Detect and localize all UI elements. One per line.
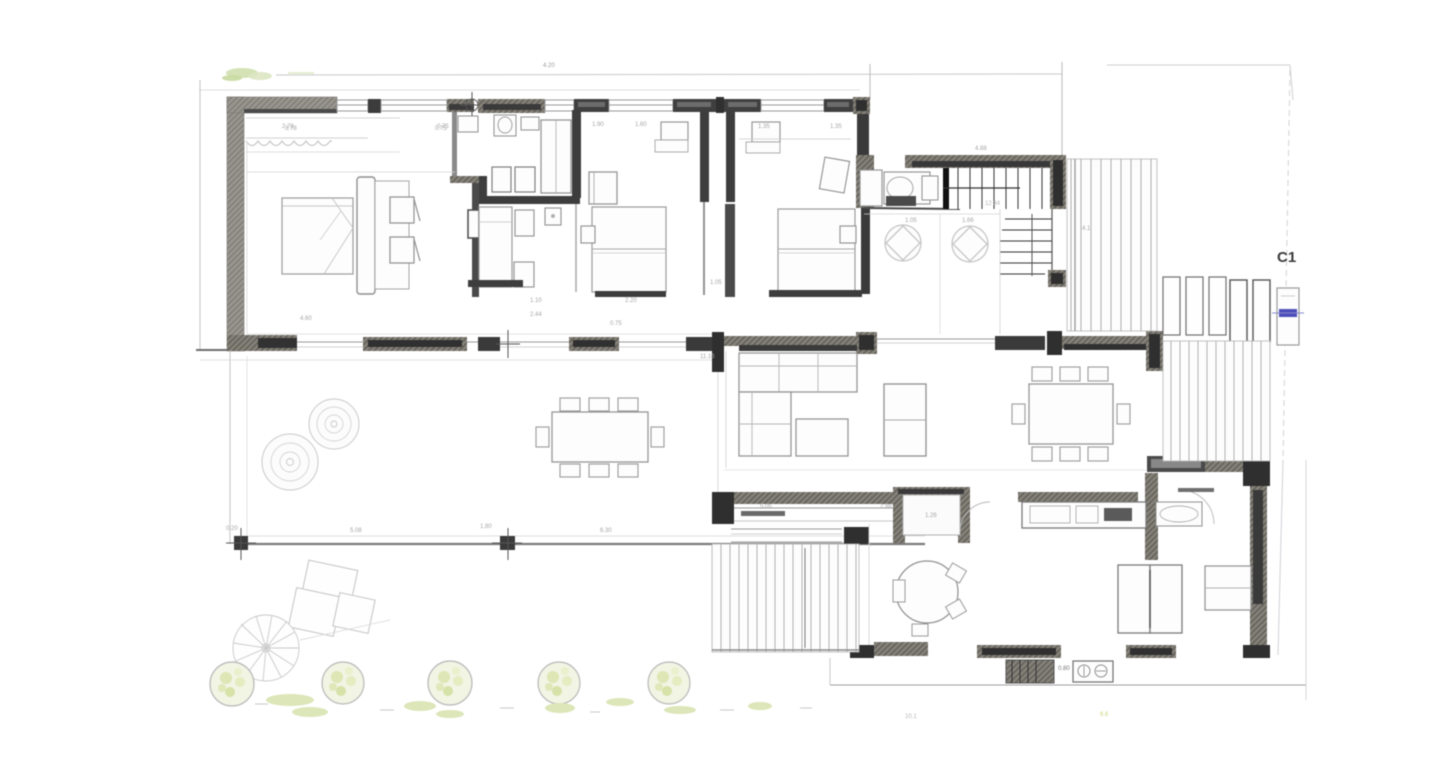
svg-text:5.08: 5.08	[350, 528, 362, 534]
svg-text:6.30: 6.30	[600, 528, 612, 534]
svg-text:6.6: 6.6	[1100, 712, 1109, 718]
svg-text:0.75: 0.75	[437, 124, 449, 130]
svg-text:1.10: 1.10	[530, 298, 542, 304]
svg-text:10.1: 10.1	[905, 714, 917, 720]
svg-text:1.90: 1.90	[592, 122, 604, 128]
svg-text:0.80: 0.80	[1058, 666, 1070, 672]
svg-text:1.80: 1.80	[480, 524, 492, 530]
svg-text:1.35: 1.35	[758, 124, 770, 130]
svg-text:4.20: 4.20	[543, 63, 555, 69]
svg-text:1.66: 1.66	[962, 218, 974, 224]
svg-text:0.75: 0.75	[610, 321, 622, 327]
svg-text:2.20: 2.20	[625, 298, 637, 304]
svg-text:12 34: 12 34	[985, 201, 1001, 207]
svg-text:4.1: 4.1	[1082, 226, 1091, 232]
svg-text:1.05: 1.05	[710, 280, 722, 286]
svg-text:C1: C1	[1277, 249, 1296, 266]
svg-text:4.88: 4.88	[975, 146, 987, 152]
svg-text:2.98: 2.98	[880, 504, 892, 510]
svg-text:11.16: 11.16	[700, 354, 715, 360]
svg-text:1.26: 1.26	[925, 513, 937, 519]
svg-text:2.78: 2.78	[282, 124, 294, 130]
svg-text:1.60: 1.60	[635, 122, 647, 128]
svg-text:1.35: 1.35	[830, 124, 842, 130]
svg-text:4.60: 4.60	[300, 316, 312, 322]
svg-text:1.05: 1.05	[905, 218, 917, 224]
svg-text:5.05: 5.05	[760, 504, 772, 510]
svg-text:2.44: 2.44	[530, 312, 542, 318]
svg-text:0.20: 0.20	[226, 526, 238, 532]
